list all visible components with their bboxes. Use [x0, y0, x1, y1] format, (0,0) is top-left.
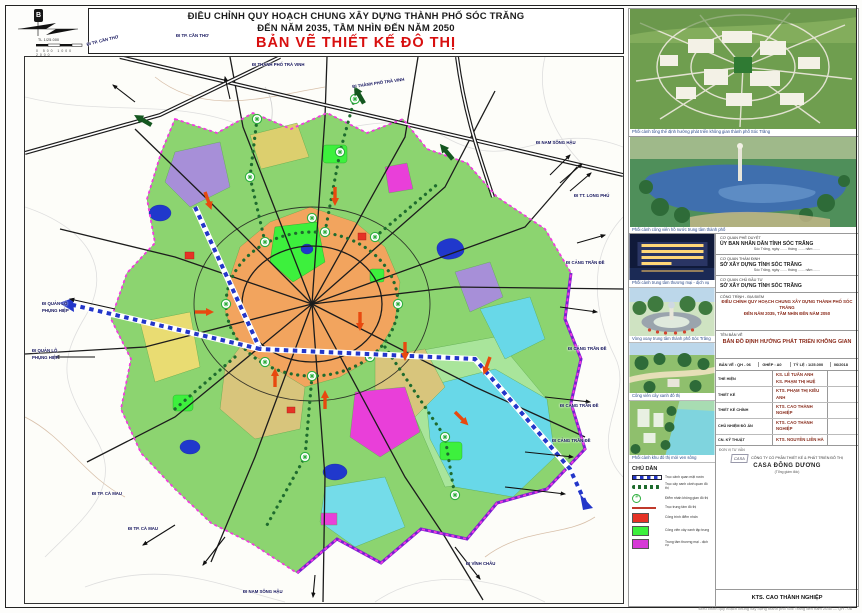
sheet-date: 06/2018: [831, 362, 858, 367]
legend-item-label: Trung tâm thương mại - dịch vụ: [665, 541, 712, 548]
legend-item: Trục cảnh quan mặt nước: [632, 475, 712, 481]
project-line-2: ĐẾN NĂM 2035, TẦM NHÌN ĐẾN NĂM 2050: [720, 311, 854, 317]
approval-block: CƠ QUAN THẨM ĐỊNH SỞ XÂY DỰNG TỈNH SÓC T…: [716, 255, 858, 276]
approval-date-line: [720, 289, 854, 290]
approval-heading: CƠ QUAN PHÊ DUYỆT: [720, 236, 854, 240]
staff-row: CN. KỸ THUẬT KTS. NGUYỄN LIÊN HÀ: [716, 435, 858, 445]
sidebar: Phối cảnh tổng thể định hướng phát triển…: [628, 8, 859, 607]
legend-symbol-icon: [632, 507, 656, 510]
photo-caption: Phối cảnh trung tâm thương mại - dịch vụ: [629, 280, 715, 287]
staff-name: KS. PHẠM THỊ HUỆ: [776, 379, 824, 385]
compass-icon: [16, 8, 86, 54]
legend-item-label: Công trình điểm nhấn: [665, 516, 698, 520]
sheet-title-block: ĐIỀU CHỈNH QUY HOẠCH CHUNG XÂY DỰNG THÀN…: [88, 8, 624, 54]
photo-park: Công viên cây xanh đô thị: [629, 343, 715, 401]
staff-signature-cell: [828, 403, 858, 418]
title-line-2: ĐẾN NĂM 2035, TẦM NHÌN ĐẾN NĂM 2050: [257, 23, 455, 35]
legend-item: Trung tâm thương mại - dịch vụ: [632, 539, 712, 549]
approval-block: CƠ QUAN PHÊ DUYỆT ỦY BAN NHÂN DÂN TỈNH S…: [716, 234, 858, 255]
legend-item: Công viên cây xanh tập trung: [632, 526, 712, 536]
legend-item: Trục trung tâm đô thị: [632, 506, 712, 510]
legend-item-label: Điểm nhấn không gian đô thị: [665, 497, 708, 501]
sheet-number: BẢN VẼ : QH - 06: [716, 362, 759, 367]
legend-item-label: Trục cảnh quan mặt nước: [665, 476, 704, 480]
legend-item-label: Trục trung tâm đô thị: [665, 506, 696, 510]
legend-symbol-icon: [632, 526, 649, 536]
scale-ticks: 0 500 1000 2000: [36, 49, 86, 57]
photo-roundabout: Vòng xoay trung tâm thành phố Sóc Trăng: [629, 288, 715, 344]
footer-note: Điều chỉnh quy hoạch chung xây dựng thàn…: [699, 606, 852, 611]
photo-caption: Vòng xoay trung tâm thành phố Sóc Trăng: [629, 336, 715, 343]
magenta-zone-sw: [321, 513, 337, 525]
staff-signature-cell: [828, 419, 858, 434]
title-line-3: BẢN VẼ THIẾT KẾ ĐÔ THỊ: [256, 35, 456, 51]
legend-title: CHÚ DẪN: [632, 466, 712, 472]
north-scale-block: B TL 1/25.000 0 500 1000 2000: [16, 8, 86, 54]
photo-column: Phối cảnh trung tâm thương mại - dịch vụ…: [629, 234, 716, 606]
render-masterplan: Phối cảnh tổng thể định hướng phát triển…: [629, 9, 858, 137]
legend-symbol-icon: [632, 475, 662, 481]
project-block: CÔNG TRÌNH - ĐỊA ĐIỂM ĐIỀU CHỈNH QUY HOẠ…: [716, 293, 858, 331]
staff-row: THIẾT KẾ CHÍNH KTS. CAO THÀNH NGHIỆP: [716, 403, 858, 419]
photo-waterfront: Phối cảnh khu đô thị mới ven sông: [629, 401, 715, 463]
staff-table: THỂ HIỆN KS. LÊ TUẤN ANH KS. PHẠM THỊ HU…: [716, 371, 858, 446]
approval-column: CƠ QUAN PHÊ DUYỆT ỦY BAN NHÂN DÂN TỈNH S…: [716, 234, 858, 606]
staff-name: KTS. CAO THÀNH NGHIỆP: [776, 404, 824, 417]
approval-block: CƠ QUAN CHỦ ĐẦU TƯ SỞ XÂY DỰNG TỈNH SÓC …: [716, 276, 858, 293]
staff-signature-cell: [828, 435, 858, 445]
company-block: ĐƠN VỊ TƯ VẤN CASA CÔNG TY CỔ PHẦN THIẾT…: [716, 446, 858, 590]
company-name-line2: CASA ĐÔNG DƯƠNG: [719, 463, 855, 469]
render-lakepark: Phối cảnh công viên hồ nước trung tâm th…: [629, 137, 858, 235]
company-subtitle: (Tổng giám đốc): [719, 470, 855, 474]
map-canvas: [24, 56, 624, 604]
company-logo: CASA: [731, 454, 749, 463]
staff-row: CHỦ NHIỆM ĐỒ ÁN KTS. CAO THÀNH NGHIỆP: [716, 419, 858, 435]
drawing-name-block: TÊN BẢN VẼ BẢN ĐỒ ĐỊNH HƯỚNG PHÁT TRIỂN …: [716, 331, 858, 359]
staff-name: KTS. NGUYỄN LIÊN HÀ: [776, 437, 824, 443]
approval-date-line: Sóc Trăng, ngày ....... tháng ....... nă…: [720, 247, 854, 252]
legend-item-label: Trục cây xanh cảnh quan đô thị: [665, 483, 712, 490]
legend-item: Trục cây xanh cảnh quan đô thị: [632, 483, 712, 490]
render-caption: Phối cảnh tổng thể định hướng phát triển…: [629, 129, 858, 136]
scale-bar-icon: [36, 44, 82, 46]
north-b-icon: B: [34, 9, 43, 22]
landuse-zones: [111, 113, 585, 573]
photo-caption: Phối cảnh khu đô thị mới ven sông: [629, 455, 715, 462]
approval-date-line: Sóc Trăng, ngày ....... tháng ....... nă…: [720, 268, 854, 273]
render-caption: Phối cảnh công viên hồ nước trung tâm th…: [629, 227, 858, 234]
legend: CHÚ DẪN Trục cảnh quan mặt nước Trục cây: [629, 463, 715, 606]
signature-name: KTS. CAO THÀNH NGHIỆP: [716, 590, 858, 606]
project-line-1: ĐIỀU CHỈNH QUY HOẠCH CHUNG XÂY DỰNG THÀN…: [720, 299, 854, 311]
staff-name: KTS. PHẠM THỊ KIỀU ANH: [776, 388, 824, 401]
drawing-name: BẢN ĐỒ ĐỊNH HƯỚNG PHÁT TRIỂN KHÔNG GIAN: [723, 339, 852, 345]
staff-role: THIẾT KẾ: [716, 387, 773, 402]
drawing-name-label: TÊN BẢN VẼ: [720, 333, 743, 337]
approval-heading: CƠ QUAN CHỦ ĐẦU TƯ: [720, 278, 854, 282]
legend-symbol-icon: [632, 539, 649, 549]
staff-name: KTS. CAO THÀNH NGHIỆP: [776, 420, 824, 433]
staff-role: THIẾT KẾ CHÍNH: [716, 403, 773, 418]
staff-signature-cell: [828, 387, 858, 402]
company-label: ĐƠN VỊ TƯ VẤN: [719, 448, 855, 452]
staff-row: THỂ HIỆN KS. LÊ TUẤN ANH KS. PHẠM THỊ HU…: [716, 371, 858, 387]
legend-symbol-icon: [632, 513, 649, 523]
title-line-1: ĐIỀU CHỈNH QUY HOẠCH CHUNG XÂY DỰNG THÀN…: [188, 11, 525, 23]
legend-item: Điểm nhấn không gian đô thị: [632, 494, 712, 503]
scale-label: TL 1/25.000: [38, 38, 59, 42]
staff-row: THIẾT KẾ KTS. PHẠM THỊ KIỀU ANH: [716, 387, 858, 403]
legend-symbol-icon: [632, 485, 660, 489]
legend-item-label: Công viên cây xanh tập trung: [665, 529, 709, 533]
sheet-scale: TỶ LỆ : 1/25.000: [791, 362, 831, 367]
staff-role: THỂ HIỆN: [716, 371, 773, 386]
sheet-meta-row: BẢN VẼ : QH - 06 GHÉP : A0 TỶ LỆ : 1/25.…: [716, 359, 858, 371]
plan-sheet: B TL 1/25.000 0 500 1000 2000 ĐIỀU CHỈNH…: [0, 0, 862, 613]
staff-role: CN. KỸ THUẬT: [716, 435, 773, 445]
sheet-paper: GHÉP : A0: [759, 362, 790, 367]
photo-commercial-night: Phối cảnh trung tâm thương mại - dịch vụ: [629, 234, 715, 288]
legend-symbol-icon: [632, 494, 641, 503]
staff-signature-cell: [828, 371, 858, 386]
company-name-line1: CÔNG TY CỔ PHẦN THIẾT KẾ & PHÁT TRIỂN ĐÔ…: [751, 456, 843, 460]
staff-role: CHỦ NHIỆM ĐỒ ÁN: [716, 419, 773, 434]
photo-caption: Công viên cây xanh đô thị: [629, 393, 715, 400]
legend-item: Công trình điểm nhấn: [632, 513, 712, 523]
approval-heading: CƠ QUAN THẨM ĐỊNH: [720, 257, 854, 261]
